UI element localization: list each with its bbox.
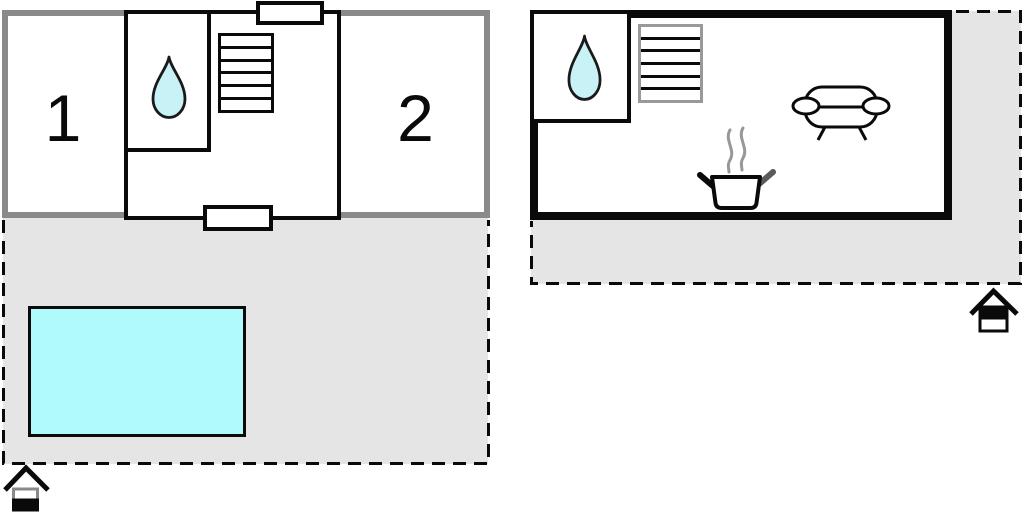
- steam-icon: [741, 128, 744, 170]
- room-1-label: 1: [2, 85, 124, 151]
- door-top: [256, 1, 324, 25]
- cooking-pot-icon: [693, 126, 778, 210]
- floor-level-house-icon-upper: [968, 286, 1020, 336]
- water-drop-icon: [150, 55, 188, 119]
- stairs-icon: [218, 33, 274, 113]
- room-2-label: 2: [341, 85, 490, 151]
- stairs-icon: [638, 24, 703, 103]
- floor-plan-canvas: 1 2: [0, 0, 1024, 515]
- steam-icon: [728, 130, 731, 172]
- door-bottom: [203, 205, 273, 231]
- water-drop-icon: [566, 34, 603, 101]
- sofa-icon: [793, 85, 893, 141]
- terrace-right-bottom: [531, 218, 1021, 284]
- floor-level-house-icon-lower: [2, 462, 52, 512]
- swimming-pool: [28, 306, 246, 437]
